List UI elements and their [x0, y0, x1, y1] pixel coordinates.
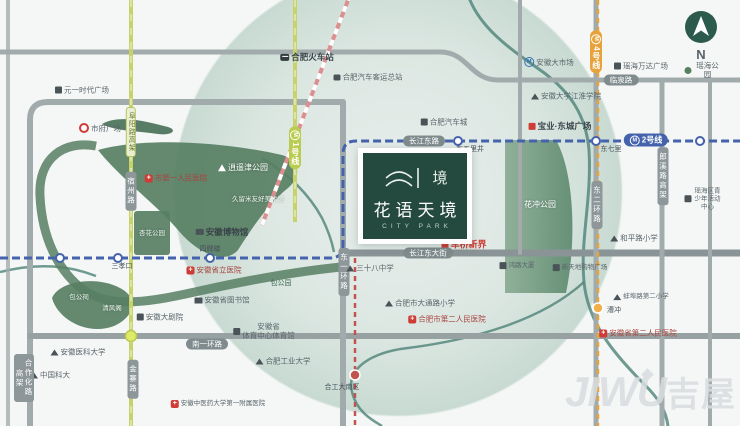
hgd-south-station-label-text: 合工大南区 [325, 384, 360, 392]
baogong-park-label: 包公园 [271, 280, 292, 288]
xinghua-park-label: 杏花公园 [139, 230, 165, 238]
school-icon [346, 265, 354, 271]
sanxiaokou-station-label: 三孝口 [112, 263, 133, 271]
yaohai-youth-center: 瑶海区青少年活动中心 [685, 187, 722, 210]
coach-terminal-text: 合肥汽车客运总站 [343, 73, 403, 82]
langxi-elevated-box-text: 郎溪路高架 [659, 152, 668, 200]
line1-badge-text: 1号线 [290, 142, 300, 165]
hefei-railway-station-text: 合肥火车站 [291, 52, 334, 62]
xintiandi-mall: 新天地购物广场 [553, 264, 608, 272]
hospital-icon: + [145, 174, 153, 182]
no38-middle-school: 三十八中学 [346, 264, 394, 273]
changjiang-east-road-box-text: 长江东路 [409, 137, 439, 146]
train-icon [280, 54, 289, 61]
anhui-big-market-text: 安徽大市场 [536, 58, 574, 67]
bus-icon [334, 74, 341, 80]
project-name-cn: 花语天境 [374, 196, 462, 221]
line2-badge-text: 2号线 [642, 135, 662, 145]
building-icon [137, 314, 144, 321]
compass-north-label: N [696, 47, 705, 62]
hefei-univ-tech-text: 合肥工业大学 [266, 357, 311, 366]
hospital-icon: + [599, 329, 607, 337]
hefei-auto-city-text: 合肥汽车城 [430, 118, 468, 127]
yuanyi-plaza-text: 元一时代广场 [64, 86, 109, 95]
hefei-2nd-peoples-hospital: +合肥市第二人民医院 [408, 315, 486, 324]
building-icon [685, 195, 692, 202]
ustc-text: 中国科大 [40, 371, 70, 380]
langxi-elevated-box: 郎溪路高架 [658, 147, 669, 205]
hefei-1st-peoples-hospital-text: 市第一人民医院 [155, 174, 208, 183]
anhui-univ-jianghuai-college: 安徽大学江淮学院 [531, 92, 601, 101]
honglu-tower-text: 鸿路大厦 [509, 262, 535, 270]
fuyang-elevated-box-text: 阜阳路高架 [127, 112, 135, 152]
city-hall-square: 市府广场 [79, 123, 121, 133]
tcm-univ-hospital-text: 安徽中医药大学第一附属医院 [181, 400, 266, 408]
caochong-station-label-text: 漕冲 [607, 307, 621, 315]
huachong-park-label-text: 花冲公园 [524, 200, 556, 210]
sipailou-station-label: 四牌楼 [200, 246, 221, 254]
changjiang-east-avenue-box-text: 长江东大街 [409, 249, 447, 258]
caochong-station-label: 漕冲 [607, 307, 621, 315]
building-icon [500, 262, 507, 269]
dongqili-station-label: 东七里 [601, 146, 622, 154]
fuyang-elevated-box: 阜阳路高架 [126, 107, 136, 157]
project-logo-seal: 境 [432, 167, 447, 188]
south-1st-ring-box: 南一环路 [186, 339, 228, 350]
compass: N [683, 9, 719, 65]
hospital-icon: + [187, 266, 195, 274]
m-white-icon: M [290, 130, 300, 140]
anhui-univ-jianghuai-college-text: 安徽大学江淮学院 [541, 92, 601, 101]
qingfeng-pavilion-label: 清风阁 [102, 305, 122, 313]
ustc: 中国科大 [30, 371, 70, 380]
sports-center-gym: 安徽省 体育中心体育馆 [233, 322, 295, 340]
project-logo: 境 花语天境 CITY PARK [358, 148, 472, 244]
tcm-univ-hospital: +安徽中医药大学第一附属医院 [171, 400, 266, 408]
honglu-tower: 鸿路大厦 [500, 262, 535, 270]
tree-white-icon [218, 165, 226, 172]
south-1st-ring-box-text: 南一环路 [192, 340, 222, 349]
building-icon [421, 119, 428, 126]
m-white-icon: M [630, 135, 640, 145]
dongqili-station-label-text: 东七里 [601, 146, 622, 154]
anhui-museum: 安徽博物馆 [196, 227, 249, 237]
school-icon [385, 300, 393, 306]
linquan-road-box-text: 临泉路 [610, 76, 633, 85]
anhui-2nd-peoples-hospital-text: 安徽省第二人民医院 [609, 329, 677, 338]
hezuohua-elevated-box-text: 合作化路高架 [15, 359, 33, 397]
baoye-dongcheng-plaza: 宝业·东城广场 [529, 121, 592, 131]
suzhou-road-box-text: 宿州路 [127, 177, 136, 206]
sports-center-gym-text: 安徽省 体育中心体育馆 [242, 322, 295, 340]
anhui-medical-univ: 安徽医科大学 [51, 348, 106, 357]
datong-road-primary-text: 合肥市大通路小学 [395, 299, 455, 308]
hefei-1st-peoples-hospital: +市第一人民医院 [145, 174, 208, 183]
anhui-provincial-hospital: +安徽省立医院 [187, 266, 242, 275]
xiaoyaojin-park-label-text: 逍遥津公园 [228, 163, 268, 173]
anhui-museum-text: 安徽博物馆 [206, 227, 249, 237]
baogong-park-label-text: 包公园 [271, 280, 292, 288]
anhui-library-text: 安徽省图书馆 [205, 296, 250, 305]
metro-icon: M [524, 57, 534, 67]
changjiang-east-road-box: 长江东路 [403, 136, 445, 147]
project-logo-card: 境 花语天境 CITY PARK [363, 153, 467, 239]
yaohai-wanda-plaza: 瑶海万达广场 [614, 62, 668, 71]
hefei-univ-tech: 合肥工业大学 [256, 357, 311, 366]
compass-icon [683, 9, 719, 45]
hefei-auto-city: 合肥汽车城 [421, 118, 468, 127]
school-icon [256, 358, 264, 364]
baoye-dongcheng-plaza-text: 宝业·东城广场 [538, 121, 592, 131]
target-icon [79, 123, 89, 133]
school-icon [531, 93, 539, 99]
anhui-grand-theatre: 安徽大剧院 [137, 313, 184, 322]
anhui-library: 安徽省图书馆 [195, 296, 250, 305]
huachong-park-label: 花冲公园 [524, 200, 556, 210]
line2-badge: M2号线 [624, 134, 668, 147]
xintiandi-mall-text: 新天地购物广场 [562, 264, 608, 272]
suzhou-road-box: 宿州路 [126, 172, 137, 211]
kurume-art-museum: 久留米友好美术馆 [232, 196, 284, 204]
yuanyi-plaza: 元一时代广场 [55, 86, 109, 95]
line4-badge-text: 4号线 [591, 46, 601, 69]
hezuohua-elevated-box: 合作化路高架 [14, 354, 34, 402]
yaohai-wanda-plaza-text: 瑶海万达广场 [623, 62, 668, 71]
no38-middle-school-text: 三十八中学 [356, 264, 394, 273]
anhui-medical-univ-text: 安徽医科大学 [61, 348, 106, 357]
changjiang-east-avenue-box: 长江东大街 [403, 248, 453, 259]
yaohai-youth-center-text: 瑶海区青少年活动中心 [694, 187, 722, 210]
linquan-road-box: 临泉路 [604, 75, 639, 86]
xiaoyaojin-park-label: 逍遥津公园 [218, 163, 268, 173]
school-icon [613, 294, 621, 300]
hefei-railway-station: 合肥火车站 [280, 52, 334, 62]
m-white-icon: M [591, 34, 601, 44]
building-red-icon [529, 123, 536, 130]
hospital-icon: + [171, 400, 179, 408]
datong-road-primary: 合肥市大通路小学 [385, 299, 455, 308]
bengbu-road-2nd-primary: 蚌埠路第二小学 [613, 293, 669, 301]
location-map[interactable]: N 境 花语天境 CITY PARK 合肥火车站合肥汽车客运总站元一时代广场市府… [0, 0, 740, 426]
qingfeng-pavilion-label-text: 清风阁 [102, 305, 122, 313]
museum-icon [196, 229, 204, 235]
building-icon [233, 328, 240, 335]
east-2nd-ring-box: 东二环路 [592, 181, 603, 229]
tree-icon [685, 67, 692, 74]
anhui-big-market: M安徽大市场 [524, 57, 574, 67]
line1-badge: M1号线 [289, 126, 301, 169]
anhui-grand-theatre-text: 安徽大剧院 [146, 313, 184, 322]
school-icon [610, 235, 618, 241]
museum-icon [195, 297, 203, 303]
building-icon [553, 264, 560, 271]
jinzhai-road-box-text: 金寨路 [129, 365, 138, 394]
project-name-en: CITY PARK [382, 223, 452, 230]
sipailou-station-label-text: 四牌楼 [200, 246, 221, 254]
hefei-2nd-peoples-hospital-text: 合肥市第二人民医院 [418, 315, 486, 324]
sanxiaokou-station-label-text: 三孝口 [112, 263, 133, 271]
city-hall-square-text: 市府广场 [91, 124, 121, 133]
project-logo-glyph [382, 164, 426, 192]
building-icon [55, 87, 62, 94]
line4-badge: M4号线 [590, 30, 602, 73]
east-2nd-ring-box-text: 东二环路 [593, 186, 602, 224]
building-icon [614, 63, 621, 70]
baogong-temple-label-text: 包公祠 [69, 294, 89, 302]
school-icon [51, 349, 59, 355]
jinzhai-road-box: 金寨路 [128, 360, 139, 399]
hospital-icon: + [408, 315, 416, 323]
kurume-art-museum-text: 久留米友好美术馆 [232, 196, 284, 204]
heping-road-primary-text: 和平路小学 [620, 234, 658, 243]
heping-road-primary: 和平路小学 [610, 234, 658, 243]
anhui-provincial-hospital-text: 安徽省立医院 [197, 266, 242, 275]
xinghua-park-label-text: 杏花公园 [139, 230, 165, 238]
hgd-south-station-label: 合工大南区 [325, 384, 360, 392]
baogong-temple-label: 包公祠 [69, 294, 89, 302]
coach-terminal: 合肥汽车客运总站 [334, 73, 403, 82]
anhui-2nd-peoples-hospital: +安徽省第二人民医院 [599, 329, 677, 338]
bengbu-road-2nd-primary-text: 蚌埠路第二小学 [623, 293, 669, 301]
